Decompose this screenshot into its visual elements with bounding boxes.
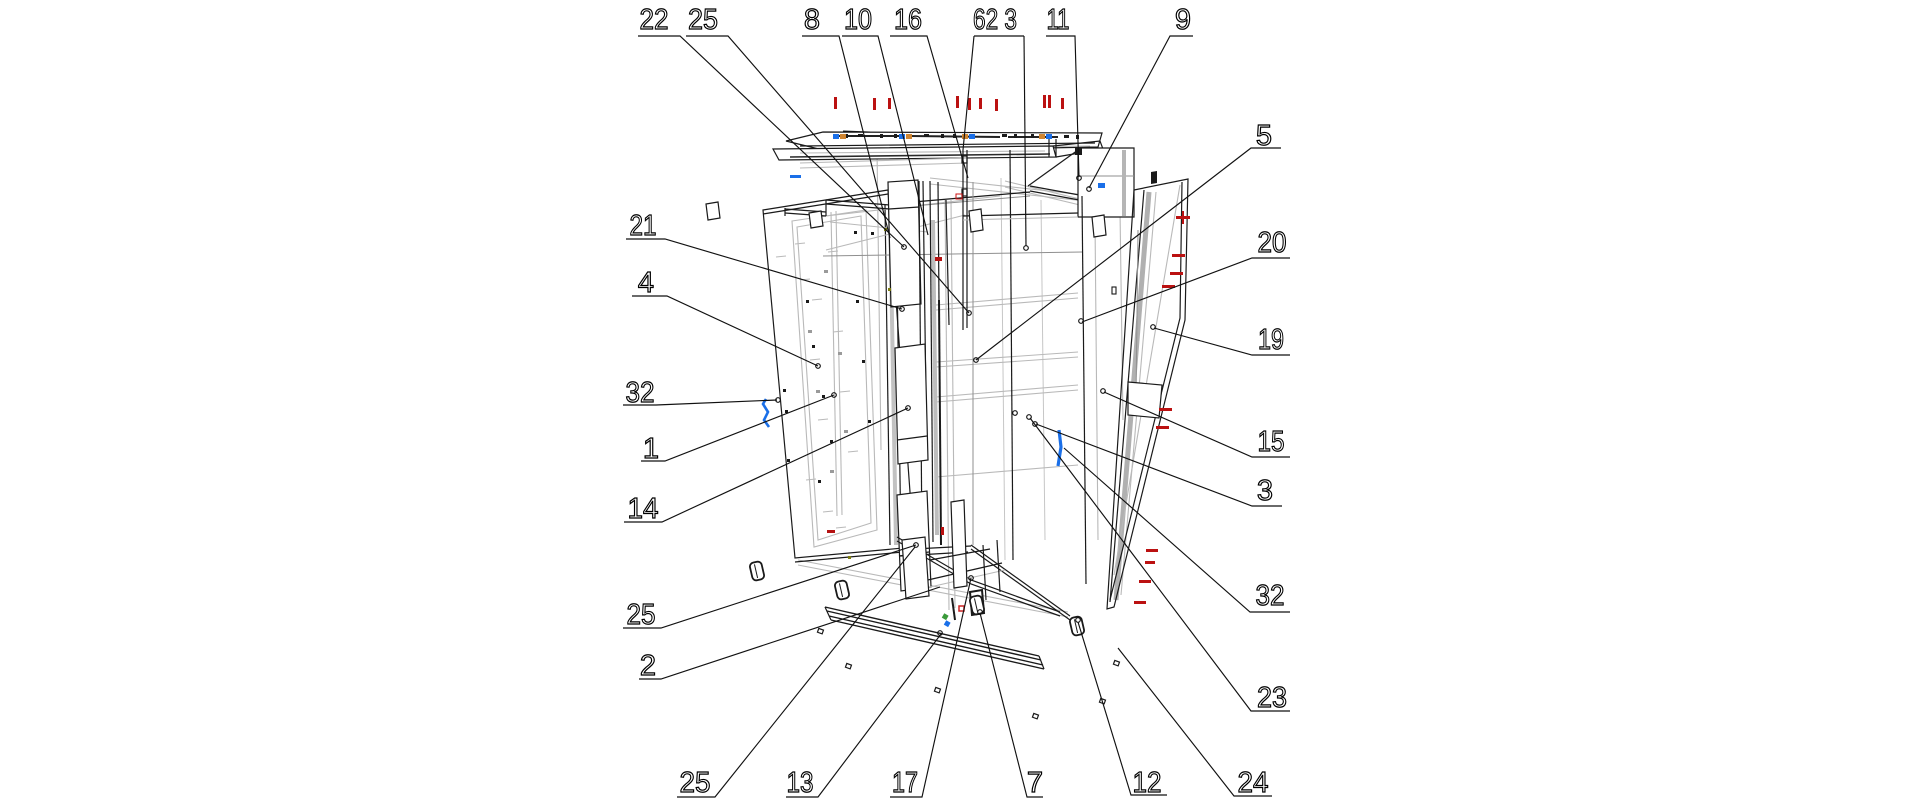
svg-text:10: 10 <box>844 4 872 36</box>
svg-text:32: 32 <box>1256 580 1285 612</box>
svg-text:13: 13 <box>787 767 814 799</box>
svg-text:4: 4 <box>638 267 654 299</box>
svg-text:25: 25 <box>627 599 656 631</box>
svg-text:8: 8 <box>804 4 820 36</box>
svg-text:19: 19 <box>1258 324 1284 356</box>
svg-text:3: 3 <box>1257 475 1273 507</box>
svg-text:15: 15 <box>1258 426 1285 458</box>
svg-text:17: 17 <box>892 767 918 799</box>
svg-text:22: 22 <box>640 4 669 36</box>
svg-text:32: 32 <box>626 377 655 409</box>
svg-text:21: 21 <box>630 210 657 242</box>
svg-text:24: 24 <box>1238 767 1269 799</box>
svg-text:25: 25 <box>688 4 718 36</box>
svg-text:12: 12 <box>1133 767 1162 799</box>
svg-text:1: 1 <box>643 433 659 465</box>
svg-text:62 3: 62 3 <box>973 4 1017 36</box>
svg-text:5: 5 <box>1256 120 1272 152</box>
svg-text:23: 23 <box>1257 682 1287 714</box>
svg-text:25: 25 <box>680 767 711 799</box>
svg-text:11: 11 <box>1047 4 1070 36</box>
svg-text:2: 2 <box>640 650 656 682</box>
svg-text:9: 9 <box>1175 4 1191 36</box>
svg-text:16: 16 <box>894 4 922 36</box>
svg-text:7: 7 <box>1027 767 1043 799</box>
svg-text:14: 14 <box>628 493 659 525</box>
svg-text:20: 20 <box>1258 227 1287 259</box>
